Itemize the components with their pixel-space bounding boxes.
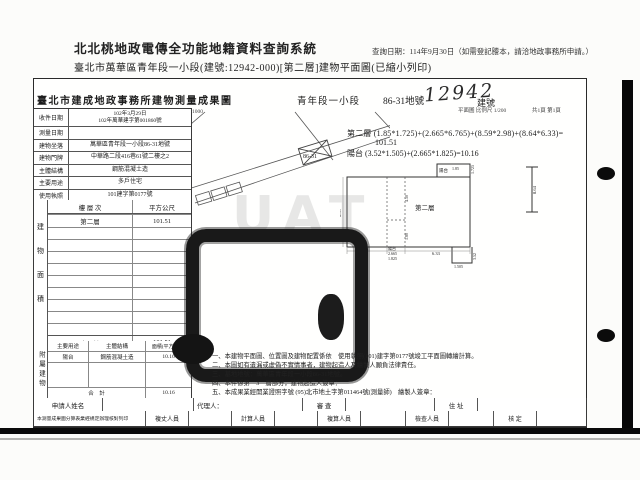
document-subtitle: 臺北市萬華區青年段一小段(建號:12942-000)[第二層]建物平面圖(已縮小… bbox=[74, 59, 432, 74]
notes-block: 一、本建物平面圖、位置圖及建物配置係依 使用執照(101)建字第0177號竣工平… bbox=[212, 352, 584, 397]
dim-label: 1.85 bbox=[452, 166, 459, 171]
table-row: 建物門牌 中華路二段416巷61號二樓之2 bbox=[34, 151, 191, 164]
scan-edge-line bbox=[0, 438, 640, 440]
floor-area-table: 建物面積 樓 層 次 平方公尺 第二層 101.51 合 計 101.51 bbox=[33, 200, 192, 342]
total-row: 合 計 10.16 bbox=[48, 387, 191, 398]
annex-side-label: 附屬建物 bbox=[34, 341, 48, 398]
punch-hole-mark bbox=[597, 167, 615, 180]
note-line: 三、基地地號：萬華區青年段一小段86-31地號。 bbox=[212, 370, 584, 379]
scan-edge-bar-right bbox=[622, 80, 633, 429]
staff-signature-row: 本測量成果圖分算表業經規定辦理核對列印 複丈人員 計算人員 複算人員 檢查人員 … bbox=[33, 411, 587, 427]
table-row bbox=[48, 287, 191, 299]
table-header-row: 樓 層 次 平方公尺 bbox=[48, 200, 191, 214]
note-line: 四、本件係第 3 層部分，建物起造人簽章： bbox=[212, 379, 584, 388]
table-row bbox=[48, 311, 191, 323]
table-row bbox=[48, 323, 191, 335]
note-line: 一、本建物平面圖、位置圖及建物配置係依 使用執照(101)建字第0177號竣工平… bbox=[212, 352, 584, 361]
table-row bbox=[48, 263, 191, 275]
table-row: 主要用途 多戶住宅 bbox=[34, 176, 191, 189]
table-row: 陽台 鋼筋混凝土造 10.16 bbox=[48, 351, 191, 362]
dim-label: 1.725 bbox=[470, 165, 475, 174]
table-header-row: 主要用途 主體結構 面積(平方公尺) bbox=[48, 341, 191, 351]
table-row bbox=[48, 239, 191, 251]
dim-label: 4.50 bbox=[404, 195, 409, 202]
plan-balcony-top-label: 陽台 bbox=[439, 167, 448, 174]
plan-scale-label: 平面圖 比例尺 1/200 bbox=[458, 106, 506, 114]
plan-floor-label: 第二層 bbox=[415, 203, 435, 212]
note-line: 五、本成果業經開業證照字號 (95)北市地土字第011464號(測量師) 繪製人… bbox=[212, 388, 584, 397]
table-row bbox=[48, 362, 191, 387]
floor-plan-drawing: 第二層 陽台 1.85 1.725 8.59 2.98 陽台 2.665 1.8… bbox=[340, 160, 590, 270]
dim-label: 3.52 bbox=[472, 253, 477, 260]
applicant-row: 申請人姓名 代理人： 審 查 住 址 bbox=[33, 398, 587, 412]
dim-label: 1.505 bbox=[454, 264, 463, 269]
ink-stamp-blob bbox=[172, 334, 214, 364]
table-row: 收件日期 102年3月29日 102年萬華建字第001860號 bbox=[34, 109, 191, 126]
survey-office-title: 臺北市建成地政事務所建物測量成果圖 bbox=[37, 92, 233, 107]
dim-label: 1.825 bbox=[388, 256, 397, 261]
table-row bbox=[48, 251, 191, 263]
dim-label: 8.64 bbox=[532, 185, 537, 194]
annex-building-table: 附屬建物 主要用途 主體結構 面積(平方公尺) 陽台 鋼筋混凝土造 10.16 … bbox=[33, 341, 192, 399]
area-formula-floor2-result: 101.51 bbox=[375, 138, 397, 147]
ink-stamp-blob bbox=[318, 294, 344, 340]
screenshot-root: 北北桃地政電傳全功能地籍資料查詢系統 查詢日期：114年9月30日（如需登記謄本… bbox=[0, 0, 640, 480]
note-line: 二、本圖如有遺漏或虛偽不實情事者，建物起造人及繪製人願負法律責任。 bbox=[212, 361, 584, 370]
table-row: 測量日期 bbox=[34, 126, 191, 139]
scan-edge-bar-bottom bbox=[0, 428, 640, 434]
dim-label: 1.80 bbox=[404, 233, 409, 240]
map-parcel-label: 86-31 bbox=[303, 154, 317, 160]
table-row: 建物坐落 萬華區青年段一小段86-31地號 bbox=[34, 139, 191, 152]
table-row: 主體結構 鋼筋混凝土造 bbox=[34, 164, 191, 177]
dim-label: 6.33 bbox=[432, 251, 441, 256]
table-row bbox=[48, 275, 191, 287]
building-info-table: 收件日期 102年3月29日 102年萬華建字第001860號 測量日期 建物坐… bbox=[33, 108, 192, 202]
page-count-label: 共1頁 第1頁 bbox=[532, 106, 561, 114]
floor-area-side-label: 建物面積 bbox=[34, 200, 48, 341]
system-title: 北北桃地政電傳全功能地籍資料查詢系統 bbox=[74, 38, 317, 57]
table-row bbox=[48, 299, 191, 311]
table-row bbox=[48, 227, 191, 239]
land-section: 青年段一小段 bbox=[297, 93, 360, 107]
area-formula-balcony: 陽台 (3.52*1.505)+(2.665*1.825)=10.16 bbox=[347, 148, 479, 159]
query-date: 查詢日期：114年9月30日（如需登記謄本，請洽地政事務所申請。） bbox=[372, 46, 593, 57]
parcel-number: 86-31地號 bbox=[383, 93, 424, 107]
punch-hole-mark bbox=[597, 329, 615, 342]
table-row: 第二層 101.51 bbox=[48, 214, 191, 227]
